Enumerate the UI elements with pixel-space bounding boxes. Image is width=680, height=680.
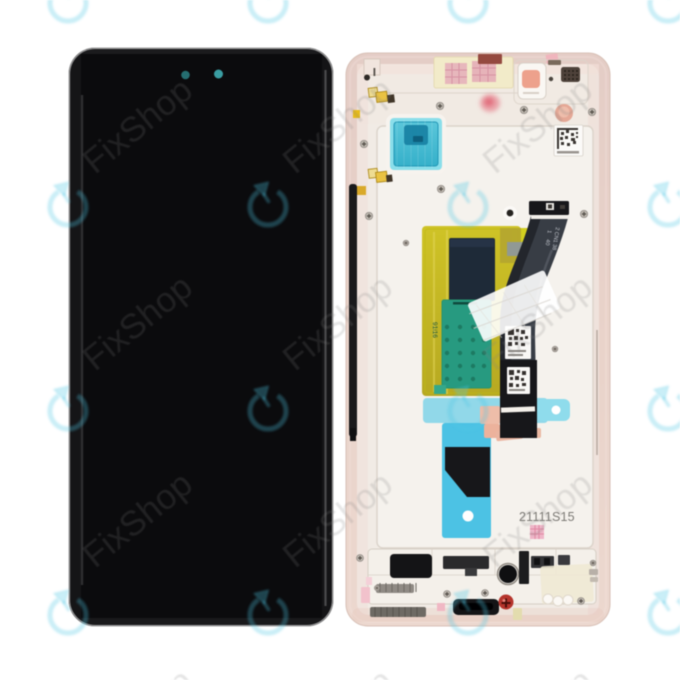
svg-text:91i16: 91i16 — [431, 322, 438, 338]
